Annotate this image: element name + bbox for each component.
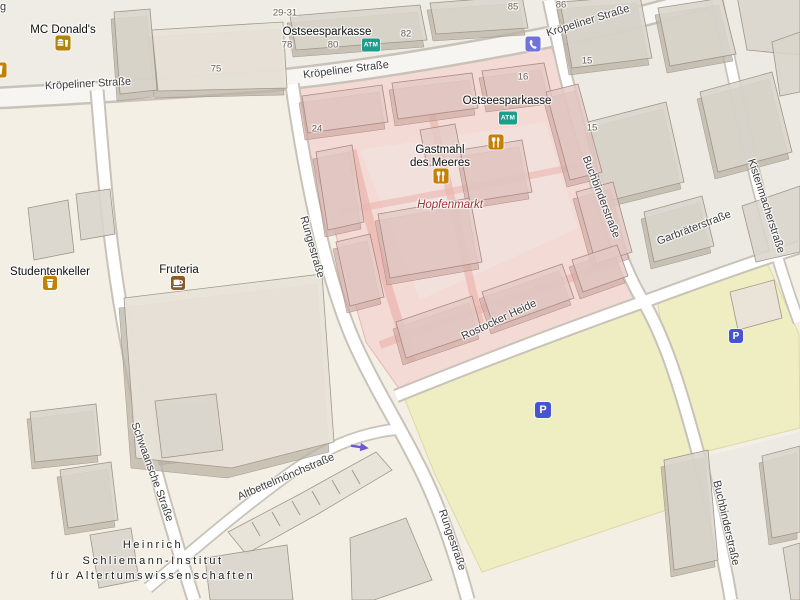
coffee-cup-glyph [173,279,183,288]
house-number: 85 [508,2,519,13]
house-number: 75 [211,64,222,75]
parking-icon[interactable]: P [535,402,551,418]
poi-label-mcdonalds: MC Donald's [30,24,95,36]
poi-label-ostseesparkasse-2: Ostseesparkasse [463,95,552,107]
shop-glyph [0,66,3,75]
restaurant-icon[interactable] [489,135,504,150]
map-base-layer [0,0,800,600]
house-number: 16 [518,72,529,83]
house-number: 15 [587,123,598,134]
poi-label-gastmahl-des-meeres: Gastmahl des Meeres [410,144,470,170]
house-number: 29-31 [273,8,297,19]
poi-label-fruteria: Fruteria [159,264,199,276]
atm-icon[interactable]: ATM [362,39,380,52]
burger-drink-glyph [58,39,69,48]
phone-icon[interactable] [526,37,541,52]
phone-handset-glyph [528,39,538,49]
house-number: 15 [582,56,593,67]
oneway-arrow-icon [349,436,371,457]
fork-knife-glyph [492,137,501,147]
atm-icon[interactable]: ATM [499,112,517,125]
house-number: 78 [282,40,293,51]
bar-icon[interactable] [43,276,57,290]
drink-glass-glyph [46,279,54,288]
restaurant-icon[interactable] [434,169,449,184]
poi-label-schliemann-institut: Heinrich Schliemann-Institut für Altertu… [51,538,255,585]
parking-icon[interactable]: P [729,329,743,343]
cafe-icon[interactable] [171,276,185,290]
fastfood-icon[interactable] [56,36,71,51]
house-number: 86 [556,0,567,11]
institute-line1: Heinrich [51,538,255,554]
institute-line3: für Altertumswissenschaften [51,569,255,585]
institute-line2: Schliemann-Institut [51,553,255,569]
shop-icon[interactable] [0,63,7,78]
fork-knife-glyph [437,171,446,181]
left-arrow-glyph [349,441,370,454]
map-canvas[interactable]: Kröpeliner Straße Kröpeliner Straße Kröp… [0,0,800,600]
poi-label-gastmahl-line1: Gastmahl [410,144,470,157]
place-label-hopfenmarkt: Hopfenmarkt [417,199,483,211]
house-number: 82 [401,29,412,40]
house-number: 80 [328,40,339,51]
house-number: 24 [312,124,323,135]
poi-label-ostseesparkasse-1: Ostseesparkasse [283,26,372,38]
edge-text-fragment: g [0,1,6,13]
